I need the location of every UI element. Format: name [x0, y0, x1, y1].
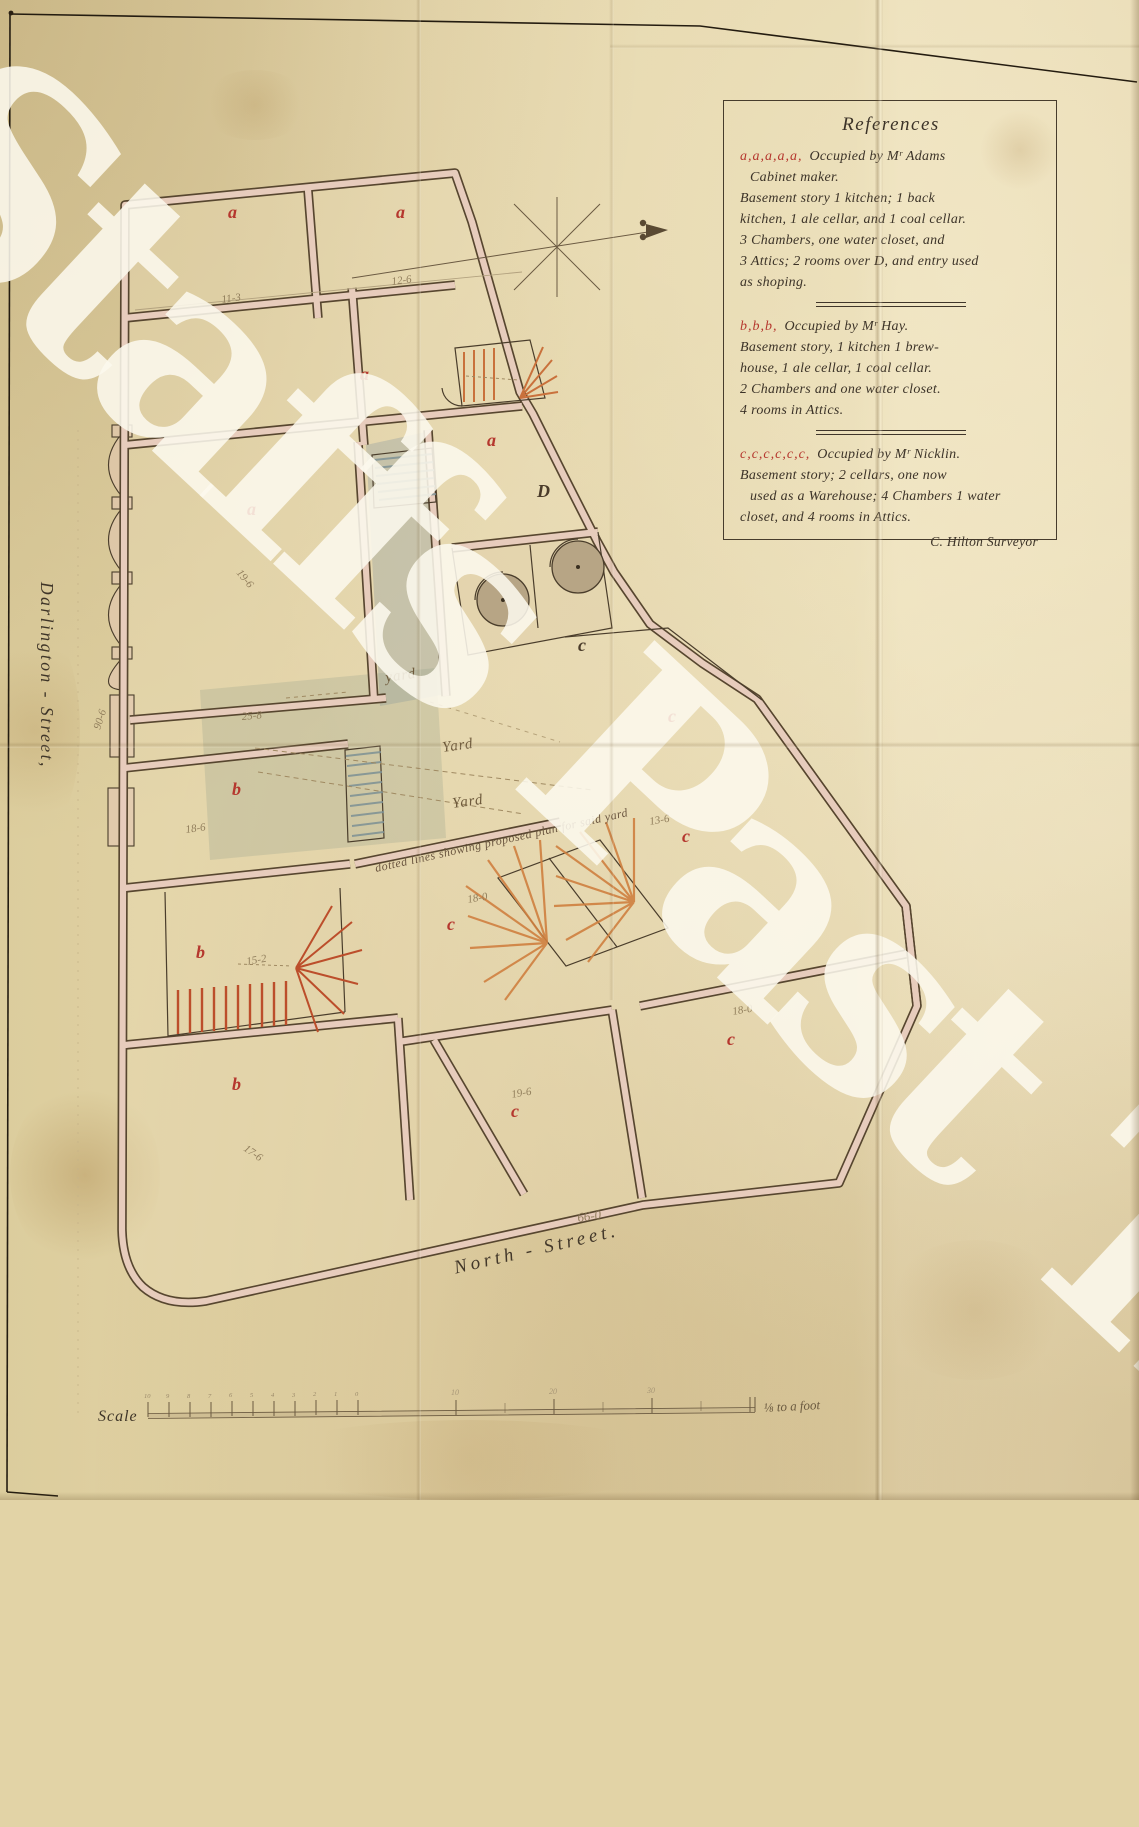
- ref-line: as shoping.: [740, 272, 1042, 293]
- scale-tick-number: 1: [334, 1391, 337, 1398]
- room-label: D: [536, 481, 550, 501]
- ref-line: Basement story; 2 cellars, one now: [740, 465, 1042, 486]
- references-section-b: b,b,b,Occupied by Mʳ Hay. Basement story…: [740, 316, 1042, 421]
- scale-tick-number: 6: [229, 1392, 233, 1399]
- ref-line: 2 Chambers and one water closet.: [740, 379, 1042, 400]
- scale-label: Scale: [98, 1408, 138, 1425]
- ref-line: used as a Warehouse; 4 Chambers 1 water: [740, 486, 1042, 507]
- scale-tick-number: 7: [208, 1393, 212, 1400]
- room-label: c: [447, 914, 455, 934]
- references-section-a: a,a,a,a,a,Occupied by Mʳ Adams Cabinet m…: [740, 146, 1042, 293]
- sheet-edge: [0, 1492, 1139, 1500]
- scale-tick-number: 10: [144, 1393, 151, 1400]
- room-label: a: [396, 202, 405, 222]
- ref-line: 4 rooms in Attics.: [740, 400, 1042, 421]
- scale-tick-number: 2: [313, 1391, 317, 1398]
- scale-tick-number: 30: [646, 1386, 655, 1395]
- divider-rule: [816, 302, 966, 307]
- dimension: 66-0: [576, 1207, 602, 1225]
- scale-tick-number: 10: [451, 1388, 459, 1397]
- room-label: b: [232, 1074, 241, 1094]
- scale-minor-numbers: 10 9 8 7 6 5 4 3 2 1 0: [144, 1391, 359, 1400]
- compass-north-ornament: [640, 220, 668, 240]
- references-title: References: [740, 111, 1042, 140]
- ref-line: Basement story, 1 kitchen 1 brew-: [740, 337, 1042, 358]
- divider-rule: [816, 430, 966, 435]
- room-label: a: [228, 202, 237, 222]
- ref-head-b: Occupied by Mʳ Hay.: [785, 319, 909, 334]
- ref-line: a,a,a,a,a,Occupied by Mʳ Adams: [740, 146, 1042, 167]
- ref-key-b: b,b,b,: [740, 319, 778, 334]
- dimension: 25-8: [241, 709, 263, 723]
- scale-unit: ⅛ to a foot: [763, 1397, 820, 1415]
- ref-line: 3 Chambers, one water closet, and: [740, 230, 1042, 251]
- ref-line: Basement story 1 kitchen; 1 back: [740, 188, 1042, 209]
- references-section-c: c,c,c,c,c,c,Occupied by Mʳ Nicklin. Base…: [740, 444, 1042, 528]
- scale-tick-number: 5: [250, 1392, 254, 1399]
- scale-tick-number: 0: [355, 1391, 359, 1398]
- references-box: References a,a,a,a,a,Occupied by Mʳ Adam…: [723, 100, 1057, 540]
- sheet-edge: [1130, 0, 1139, 1500]
- scale-tick-number: 4: [271, 1392, 275, 1399]
- scale-tick-number: 20: [549, 1387, 557, 1396]
- room-label: a: [487, 430, 496, 450]
- scale-tick-number: 8: [187, 1393, 191, 1400]
- ref-line: c,c,c,c,c,c,Occupied by Mʳ Nicklin.: [740, 444, 1042, 465]
- scale-tick-number: 9: [166, 1393, 170, 1400]
- ref-line: b,b,b,Occupied by Mʳ Hay.: [740, 316, 1042, 337]
- ref-line: Cabinet maker.: [740, 167, 1042, 188]
- ref-line: closet, and 4 rooms in Attics.: [740, 507, 1042, 528]
- ref-head-c: Occupied by Mʳ Nicklin.: [817, 447, 960, 462]
- room-label: c: [682, 826, 690, 846]
- ref-line: kitchen, 1 ale cellar, and 1 coal cellar…: [740, 209, 1042, 230]
- room-label: b: [196, 942, 205, 962]
- room-label: c: [668, 706, 676, 726]
- room-label: a: [247, 499, 256, 519]
- room-label: c: [578, 635, 586, 655]
- room-label: c: [727, 1029, 735, 1049]
- street-label-darlington: Darlington - Street,: [36, 582, 57, 769]
- scale-major-numbers: 10 20 30: [451, 1386, 655, 1397]
- ref-key-a: a,a,a,a,a,: [740, 149, 803, 164]
- dimension: 90-6: [91, 708, 109, 731]
- scale-bar: Scale 10 9 8 7 6 5 4 3 2 1 0 10 20 30 ⅛ …: [98, 1386, 821, 1425]
- ref-line: house, 1 ale cellar, 1 coal cellar.: [740, 358, 1042, 379]
- room-label: b: [232, 779, 241, 799]
- ref-line: 3 Attics; 2 rooms over D, and entry used: [740, 251, 1042, 272]
- room-label: c: [511, 1101, 519, 1121]
- room-label: a: [360, 364, 369, 384]
- ref-key-c: c,c,c,c,c,c,: [740, 447, 810, 462]
- ref-head-a: Occupied by Mʳ Adams: [810, 149, 946, 164]
- surveyor-signature: C. Hilton Surveyor: [740, 532, 1042, 552]
- scale-tick-number: 3: [291, 1392, 296, 1399]
